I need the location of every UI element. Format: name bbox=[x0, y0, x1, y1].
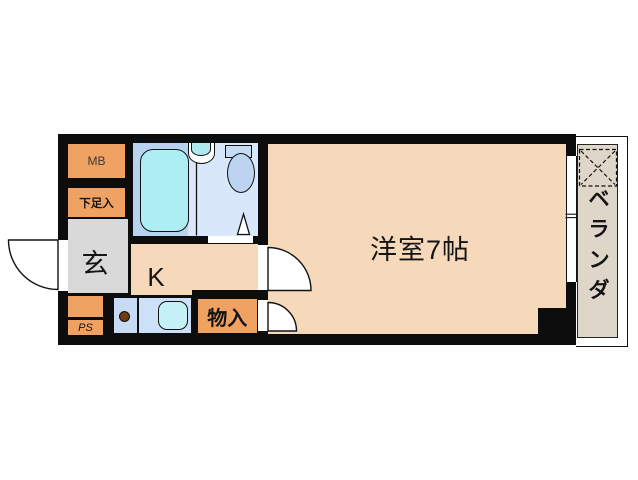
washbasin-bowl-icon bbox=[191, 143, 211, 156]
utility-box bbox=[68, 296, 103, 317]
bathtub bbox=[140, 149, 189, 232]
shoe-cabinet-label: 下足入 bbox=[68, 195, 125, 210]
toilet-bowl-icon bbox=[227, 153, 255, 193]
storage-closet-label: 物入 bbox=[198, 305, 258, 327]
pipe-space-label: PS bbox=[68, 321, 103, 334]
room-door-opening bbox=[258, 245, 268, 290]
floorplan-canvas: 洋室7帖 K 玄 物入 MB 下足入 PS ベ ラ ン ダ bbox=[0, 0, 638, 480]
balcony-label-char: ラ bbox=[589, 219, 610, 240]
kitchen-label: K bbox=[140, 263, 172, 291]
entrance-label: 玄 bbox=[81, 247, 109, 275]
western-room-label: 洋室7帖 bbox=[350, 232, 490, 262]
balcony-label-char: ン bbox=[589, 250, 610, 271]
corner-pillar bbox=[538, 308, 566, 334]
balcony-label: ベ ラ ン ダ bbox=[586, 189, 612, 301]
kitchen-sink-icon bbox=[158, 301, 188, 330]
bathroom-door-opening bbox=[208, 236, 253, 244]
sliding-window bbox=[566, 156, 577, 282]
balcony-label-char: ダ bbox=[589, 280, 610, 301]
closet-door-opening bbox=[258, 300, 268, 331]
meter-box-label: MB bbox=[68, 153, 125, 169]
balcony-label-char: ベ bbox=[589, 189, 610, 210]
entrance-door-opening bbox=[58, 240, 68, 291]
stove-burner-icon bbox=[119, 311, 130, 322]
entrance-door-swing bbox=[9, 240, 59, 290]
